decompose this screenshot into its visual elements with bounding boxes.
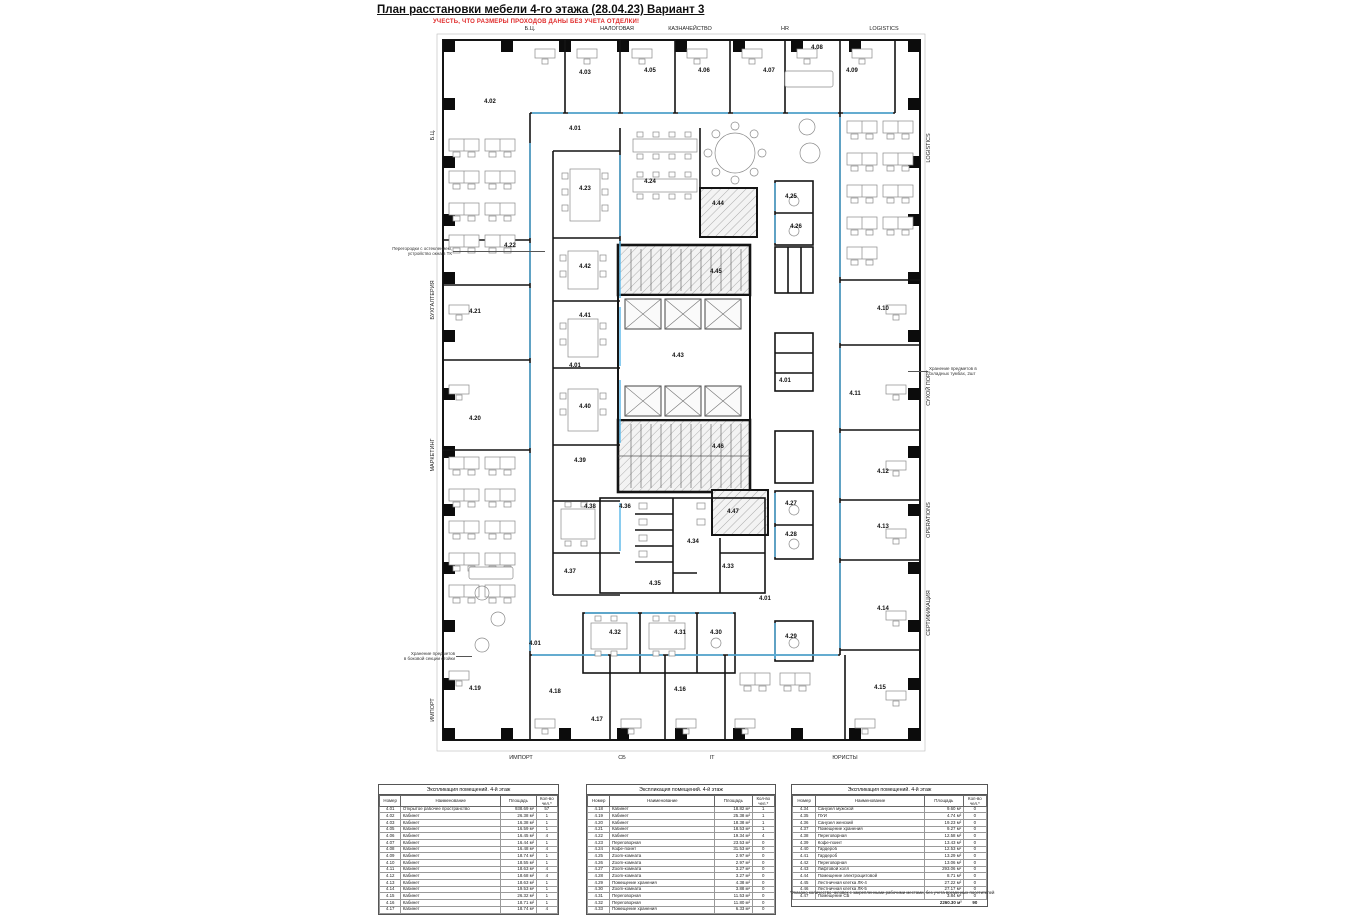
table-row: 4.37Помещение хранения9.27 м²0: [793, 826, 987, 833]
table-cell: Кабинет: [401, 873, 501, 880]
table-cell: 18.55 м²: [501, 860, 537, 867]
room-label-4.42: 4.42: [579, 264, 591, 270]
table-cell: Гардероб: [816, 853, 925, 860]
table-cell: 1: [752, 806, 774, 813]
table-cell: 18.74 м²: [501, 906, 537, 913]
table-header-cell: Кол-во чел.*: [752, 795, 774, 806]
table-cell: Кабинет: [401, 866, 501, 873]
table-row: 4.28Zoom-комната3.27 м²0: [588, 873, 775, 880]
table-cell: 4.22: [588, 833, 610, 840]
table-row: 4.41Гардероб13.29 м²0: [793, 853, 987, 860]
table-cell: 0: [963, 880, 986, 887]
room-label-4.05: 4.05: [644, 68, 656, 74]
table-cell: 57: [536, 806, 557, 813]
table-cell: 4.42: [793, 860, 816, 867]
table-header-cell: Площадь: [501, 795, 537, 806]
table-cell: 4.33: [588, 906, 610, 913]
table-cell: 0: [963, 806, 986, 813]
room-label-4.19: 4.19: [469, 686, 481, 692]
table-cell: Zoom-комната: [610, 873, 715, 880]
table-cell: 16.38 м²: [501, 819, 537, 826]
table-cell: 1: [752, 813, 774, 820]
table-cell: 0: [752, 873, 774, 880]
table-cell: 4.14: [380, 886, 401, 893]
table-cell: 19.34 м²: [715, 833, 752, 840]
table-cell: Кабинет: [401, 860, 501, 867]
table-row: 4.35ПУИ4.74 м²0: [793, 813, 987, 820]
room-label-4.17: 4.17: [591, 717, 603, 723]
room-label-4.28: 4.28: [785, 532, 797, 538]
warning-note: УЧЕСТЬ, ЧТО РАЗМЕРЫ ПРОХОДОВ ДАНЫ БЕЗ УЧ…: [433, 19, 639, 25]
table-cell: 4.32: [588, 900, 610, 907]
table-cell: 4.41: [793, 853, 816, 860]
room-label-4.13: 4.13: [877, 524, 889, 530]
table-row: 4.25Zoom-комната2.97 м²0: [588, 853, 775, 860]
table-cell: 4.35: [793, 813, 816, 820]
table-row: 4.23Переговорная23.53 м²0: [588, 839, 775, 846]
table-cell: Санузел женский: [816, 819, 925, 826]
table-row: 4.34Санузел мужской9.60 м²0: [793, 806, 987, 813]
table-cell: 27.22 м²: [924, 880, 963, 887]
table-cell: 0: [752, 853, 774, 860]
table-cell: 12.53 м²: [924, 846, 963, 853]
zone-label-LOGISTICS: LOGISTICS: [869, 26, 898, 32]
table-total-cell: 2260.30 м²: [924, 900, 963, 906]
table-header-cell: Кол-во чел.*: [536, 795, 557, 806]
table-cell: 4.21: [588, 826, 610, 833]
table-cell: Кабинет: [401, 906, 501, 913]
room-label-4.11: 4.11: [849, 391, 861, 397]
zone-label-HR: HR: [781, 26, 789, 32]
table-row: 4.30Zoom-комната3.88 м²0: [588, 886, 775, 893]
room-label-4.45: 4.45: [710, 269, 722, 275]
table-header-cell: Наименование: [816, 795, 925, 806]
table-cell: Санузел мужской: [816, 806, 925, 813]
zone-label-LOGISTICS: LOGISTICS: [926, 133, 932, 162]
table-cell: 1: [536, 893, 557, 900]
table-cell: Zoom-комната: [610, 860, 715, 867]
table-cell: 4: [536, 906, 557, 913]
room-label-4.01: 4.01: [569, 126, 581, 132]
table-cell: 1: [536, 880, 557, 887]
table-cell: 4: [752, 833, 774, 840]
room-label-4.02: 4.02: [484, 99, 496, 105]
room-label-4.01: 4.01: [569, 363, 581, 369]
room-label-4.10: 4.10: [877, 306, 889, 312]
room-label-4.35: 4.35: [649, 581, 661, 587]
table-cell: Открытое рабочее пространство: [401, 806, 501, 813]
table-cell: 0: [963, 853, 986, 860]
room-label-4.30: 4.30: [710, 630, 722, 636]
table-row: 4.11Кабинет18.63 м²4: [380, 866, 558, 873]
table-cell: 26.32 м²: [501, 893, 537, 900]
table-cell: 4.36: [793, 819, 816, 826]
table-row: 4.31Переговорная11.53 м²0: [588, 893, 775, 900]
table-cell: Кабинет: [610, 833, 715, 840]
table-cell: Кабинет: [610, 813, 715, 820]
table-header-cell: Площадь: [715, 795, 752, 806]
table-cell: Переговорная: [610, 900, 715, 907]
room-label-4.16: 4.16: [674, 687, 686, 693]
table-cell: 4.28: [588, 873, 610, 880]
room-label-4.08: 4.08: [811, 45, 823, 51]
table-row: 4.24Кофе-поинт31.53 м²0: [588, 846, 775, 853]
table-cell: 4: [536, 866, 557, 873]
room-label-4.40: 4.40: [579, 404, 591, 410]
table-cell: Кабинет: [401, 839, 501, 846]
table-cell: 26.38 м²: [501, 813, 537, 820]
table-cell: 4.23: [588, 839, 610, 846]
table-cell: Кабинет: [401, 893, 501, 900]
table-cell: 4.26: [588, 860, 610, 867]
table-cell: 4: [536, 873, 557, 880]
table-cell: 4.10: [380, 860, 401, 867]
table-cell: 9.27 м²: [924, 826, 963, 833]
explication-table-2: Экспликация помещений. 4-й этажНомерНаим…: [586, 784, 776, 915]
table-cell: 3.88 м²: [715, 886, 752, 893]
table-cell: 1: [752, 819, 774, 826]
table-cell: Гардероб: [816, 846, 925, 853]
table-cell: 13.29 м²: [924, 853, 963, 860]
table-cell: 4.30: [588, 886, 610, 893]
table-header-cell: Площадь: [924, 795, 963, 806]
table-cell: Лифтовой холл: [816, 866, 925, 873]
table-cell: 938.69 м²: [501, 806, 537, 813]
table-cell: 4.38: [793, 833, 816, 840]
table-cell: 4.38 м²: [715, 880, 752, 887]
table-cell: 1: [536, 813, 557, 820]
table-cell: 4.74 м²: [924, 813, 963, 820]
table-cell: Помещение хранения: [816, 826, 925, 833]
table-cell: 13.06 м²: [924, 860, 963, 867]
table-cell: 4.25: [588, 853, 610, 860]
table-cell: 12.58 м²: [924, 833, 963, 840]
room-label-4.01: 4.01: [759, 596, 771, 602]
table-cell: 4.17: [380, 906, 401, 913]
room-label-4.46: 4.46: [712, 444, 724, 450]
table-row: 4.01Открытое рабочее пространство938.69 …: [380, 806, 558, 813]
table-cell: ПУИ: [816, 813, 925, 820]
table-cell: 4.15: [380, 893, 401, 900]
table-cell: Кабинет: [401, 900, 501, 907]
table-cell: 0: [963, 846, 986, 853]
table-cell: 8.71 м²: [924, 873, 963, 880]
table-cell: 1: [536, 819, 557, 826]
table-row: 4.14Кабинет19.53 м²1: [380, 886, 558, 893]
table-cell: 13.43 м²: [924, 839, 963, 846]
room-label-4.07: 4.07: [763, 68, 775, 74]
table-cell: Лестничная клетка ЛК-4: [816, 880, 925, 887]
table-cell: 1: [536, 826, 557, 833]
room-label-4.12: 4.12: [877, 469, 889, 475]
table-row: 4.43Лифтовой холл293.06 м²0: [793, 866, 987, 873]
room-label-4.15: 4.15: [874, 685, 886, 691]
table-cell: 4.02: [380, 813, 401, 820]
table-cell: 0: [752, 893, 774, 900]
table-cell: 9.60 м²: [924, 806, 963, 813]
table-row: 4.18Кабинет18.82 м²1: [588, 806, 775, 813]
table-cell: Кабинет: [401, 853, 501, 860]
room-label-4.27: 4.27: [785, 501, 797, 507]
table-cell: Zoom-комната: [610, 866, 715, 873]
explication-table-1: Экспликация помещений. 4-й этажНомерНаим…: [378, 784, 559, 915]
table-cell: 4.12: [380, 873, 401, 880]
table-row: 4.15Кабинет26.32 м²1: [380, 893, 558, 900]
room-label-4.14: 4.14: [877, 606, 889, 612]
room-label-4.25: 4.25: [785, 194, 797, 200]
table-row: 4.20Кабинет18.38 м²1: [588, 819, 775, 826]
table-cell: 3.27 м²: [715, 866, 752, 873]
table-cell: 4.13: [380, 880, 401, 887]
table-cell: 16.44 м²: [501, 839, 537, 846]
table-row: 4.27Zoom-комната3.27 м²0: [588, 866, 775, 873]
table-header-cell: Номер: [793, 795, 816, 806]
table-row: 4.39Кофе-поинт13.43 м²0: [793, 839, 987, 846]
room-label-4.38: 4.38: [584, 504, 596, 510]
table-cell: Кабинет: [610, 819, 715, 826]
room-label-4.34: 4.34: [687, 539, 699, 545]
room-label-4.44: 4.44: [712, 201, 724, 207]
table-row: 4.05Кабинет16.59 м²1: [380, 826, 558, 833]
table-row: 4.40Гардероб12.53 м²0: [793, 846, 987, 853]
room-label-4.32: 4.32: [609, 630, 621, 636]
room-label-4.01: 4.01: [779, 378, 791, 384]
annotation-leader-1: [453, 251, 545, 252]
table-cell: 16.59 м²: [501, 826, 537, 833]
table-cell: Кабинет: [401, 846, 501, 853]
table-row: 4.32Переговорная11.80 м²0: [588, 900, 775, 907]
room-label-4.23: 4.23: [579, 186, 591, 192]
table-row: 4.13Кабинет18.63 м²1: [380, 880, 558, 887]
table-cell: Помещение хранения: [610, 906, 715, 913]
table-cell: 4.09: [380, 853, 401, 860]
room-label-4.37: 4.37: [564, 569, 576, 575]
table-cell: 4.07: [380, 839, 401, 846]
table-cell: 4.37: [793, 826, 816, 833]
table-cell: Кабинет: [401, 813, 501, 820]
core-stairs-elevators: [618, 188, 768, 535]
table-cell: 0: [963, 833, 986, 840]
table-cell: 4.43: [793, 866, 816, 873]
table-cell: 0: [963, 813, 986, 820]
table-cell: 25.38 м²: [715, 813, 752, 820]
room-label-4.29: 4.29: [785, 634, 797, 640]
page-title: План расстановки мебели 4-го этажа (28.0…: [377, 4, 704, 16]
table-row: 4.16Кабинет18.71 м²1: [380, 900, 558, 907]
table-row: 4.08Кабинет16.48 м²4: [380, 846, 558, 853]
room-label-4.20: 4.20: [469, 416, 481, 422]
table-row: 4.10Кабинет18.55 м²1: [380, 860, 558, 867]
table-cell: 23.53 м²: [715, 839, 752, 846]
table-cell: 4.24: [588, 846, 610, 853]
table-total-cell: [793, 900, 816, 906]
zone-label-НАЛОГОВАЯ: НАЛОГОВАЯ: [600, 26, 634, 32]
table-cell: 4.03: [380, 819, 401, 826]
table-row: 4.09Кабинет18.74 м²1: [380, 853, 558, 860]
zone-label-СБ: СБ: [618, 755, 626, 761]
table-cell: 4.39: [793, 839, 816, 846]
explication-table-3: Экспликация помещений. 4-й этажНомерНаим…: [791, 784, 988, 907]
table-cell: 1: [536, 860, 557, 867]
table-cell: 18.38 м²: [715, 819, 752, 826]
drawing-sheet: { "header": { "title": "План расстановки…: [0, 0, 1360, 900]
table-cell: Переговорная: [610, 893, 715, 900]
table-row: 4.03Кабинет16.38 м²1: [380, 819, 558, 826]
table-cell: 0: [963, 819, 986, 826]
table-cell: 31.53 м²: [715, 846, 752, 853]
table-cell: 4.34: [793, 806, 816, 813]
table-cell: Кабинет: [610, 806, 715, 813]
table-cell: 0: [752, 900, 774, 907]
table-cell: Переговорная: [816, 860, 925, 867]
table-cell: 0: [752, 839, 774, 846]
table-cell: 1: [752, 826, 774, 833]
table-cell: 16.45 м²: [501, 833, 537, 840]
table-cell: 4.11: [380, 866, 401, 873]
table-header-cell: Наименование: [610, 795, 715, 806]
table-cell: 0: [963, 873, 986, 880]
table-cell: 0: [752, 906, 774, 913]
room-label-4.41: 4.41: [579, 313, 591, 319]
table-row: 4.22Кабинет19.34 м²4: [588, 833, 775, 840]
table-cell: 0: [963, 839, 986, 846]
table-cell: 18.71 м²: [501, 900, 537, 907]
table-cell: 18.68 м²: [501, 873, 537, 880]
room-label-4.47: 4.47: [727, 509, 739, 515]
table-cell: 4: [536, 833, 557, 840]
room-label-4.39: 4.39: [574, 458, 586, 464]
table-row: 4.19Кабинет25.38 м²1: [588, 813, 775, 820]
zone-label-ЮРИСТЫ: ЮРИСТЫ: [832, 755, 857, 761]
table-cell: 4.05: [380, 826, 401, 833]
table-cell: 4.18: [588, 806, 610, 813]
room-label-4.01: 4.01: [529, 641, 541, 647]
table-cell: 4.06: [380, 833, 401, 840]
table-header-cell: Наименование: [401, 795, 501, 806]
table-cell: 0: [963, 866, 986, 873]
table-cell: 0: [752, 886, 774, 893]
table-row: 4.42Переговорная13.06 м²0: [793, 860, 987, 867]
zone-label-МАРКЕТИНГ: МАРКЕТИНГ: [430, 438, 436, 471]
table-total-cell: 90: [963, 900, 986, 906]
table-row: 4.33Помещение хранения6.33 м²0: [588, 906, 775, 913]
table-cell: 4.31: [588, 893, 610, 900]
table-cell: 0: [963, 826, 986, 833]
table-row: 4.12Кабинет18.68 м²4: [380, 873, 558, 880]
floor-plan: 4.024.034.054.064.074.084.094.014.014.01…: [435, 33, 927, 755]
table-cell: Переговорная: [816, 833, 925, 840]
table-row: 4.17Кабинет18.74 м²4: [380, 906, 558, 913]
table-row: 4.44Помещение электрощитовой8.71 м²0: [793, 873, 987, 880]
table-cell: Кофе-поинт: [610, 846, 715, 853]
table-cell: 1: [536, 900, 557, 907]
floor-plan-drawing: 4.024.034.054.064.074.084.094.014.014.01…: [435, 33, 927, 755]
table-cell: 2.97 м²: [715, 860, 752, 867]
table-row: 4.06Кабинет16.45 м²4: [380, 833, 558, 840]
zone-label-ИМПОРТ: ИМПОРТ: [430, 698, 436, 722]
zone-label-Б.Ц.: Б.Ц.: [525, 26, 536, 32]
room-label-4.18: 4.18: [549, 689, 561, 695]
table-cell: 0: [752, 880, 774, 887]
room-label-4.06: 4.06: [698, 68, 710, 74]
table-cell: 0: [752, 846, 774, 853]
table-cell: 4.27: [588, 866, 610, 873]
zone-label-Б.Ц.: Б.Ц.: [430, 130, 436, 141]
tables-footnote: *Указано количество человек с закрепленн…: [790, 890, 994, 895]
room-label-4.43: 4.43: [672, 353, 684, 359]
table-cell: 4.29: [588, 880, 610, 887]
table-cell: 0: [752, 866, 774, 873]
table-total-cell: [816, 900, 925, 906]
table-cell: Кабинет: [401, 886, 501, 893]
table-cell: Кабинет: [401, 819, 501, 826]
annotation-leader-3: [908, 371, 928, 372]
table-cell: 1: [536, 839, 557, 846]
table-cell: 11.53 м²: [715, 893, 752, 900]
table-cell: 4.16: [380, 900, 401, 907]
table-cell: Переговорная: [610, 839, 715, 846]
table-cell: 293.06 м²: [924, 866, 963, 873]
table-cell: 19.23 м²: [924, 819, 963, 826]
room-label-4.36: 4.36: [619, 504, 631, 510]
table-cell: 4.40: [793, 846, 816, 853]
table-cell: Кофе-поинт: [816, 839, 925, 846]
table-cell: 4.44: [793, 873, 816, 880]
table-cell: 19.53 м²: [501, 886, 537, 893]
table-title: Экспликация помещений. 4-й этаж: [379, 785, 558, 795]
room-label-4.22: 4.22: [504, 243, 516, 249]
table-cell: 4.20: [588, 819, 610, 826]
room-label-4.31: 4.31: [674, 630, 686, 636]
annotation-note-1: Перегородки с остеклением, устройство ок…: [392, 246, 452, 256]
room-label-4.24: 4.24: [644, 179, 656, 185]
table-cell: 18.63 м²: [501, 880, 537, 887]
table-title: Экспликация помещений. 4-й этаж: [792, 785, 987, 795]
table-cell: 0: [752, 860, 774, 867]
table-cell: 11.80 м²: [715, 900, 752, 907]
table-cell: Помещение хранения: [610, 880, 715, 887]
room-label-4.09: 4.09: [846, 68, 858, 74]
zone-label-БУХГАЛТЕРИЯ: БУХГАЛТЕРИЯ: [430, 280, 436, 319]
zone-label-КАЗНАЧЕЙСТВО: КАЗНАЧЕЙСТВО: [668, 26, 712, 32]
table-cell: Помещение электрощитовой: [816, 873, 925, 880]
table-cell: 16.48 м²: [501, 846, 537, 853]
table-cell: 4.01: [380, 806, 401, 813]
table-row: 4.36Санузел женский19.23 м²0: [793, 819, 987, 826]
table-row: 4.02Кабинет26.38 м²1: [380, 813, 558, 820]
table-title: Экспликация помещений. 4-й этаж: [587, 785, 775, 795]
zone-label-OPERATIONS: OPERATIONS: [926, 502, 932, 538]
table-cell: Кабинет: [401, 880, 501, 887]
table-cell: 6.33 м²: [715, 906, 752, 913]
room-label-4.03: 4.03: [579, 70, 591, 76]
table-header-cell: Кол-во чел.*: [963, 795, 986, 806]
table-cell: 18.63 м²: [501, 866, 537, 873]
table-row: 4.45Лестничная клетка ЛК-427.22 м²0: [793, 880, 987, 887]
table-row: 4.07Кабинет16.44 м²1: [380, 839, 558, 846]
table-cell: 18.53 м²: [715, 826, 752, 833]
table-row: 4.29Помещение хранения4.38 м²0: [588, 880, 775, 887]
table-cell: 1: [536, 853, 557, 860]
table-total-row: 2260.30 м²90: [793, 900, 987, 906]
table-cell: 3.27 м²: [715, 873, 752, 880]
table-cell: Zoom-комната: [610, 853, 715, 860]
room-label-4.33: 4.33: [722, 564, 734, 570]
table-cell: 4.08: [380, 846, 401, 853]
table-row: 4.21Кабинет18.53 м²1: [588, 826, 775, 833]
annotation-leader-2: [456, 656, 472, 657]
table-cell: 4.45: [793, 880, 816, 887]
